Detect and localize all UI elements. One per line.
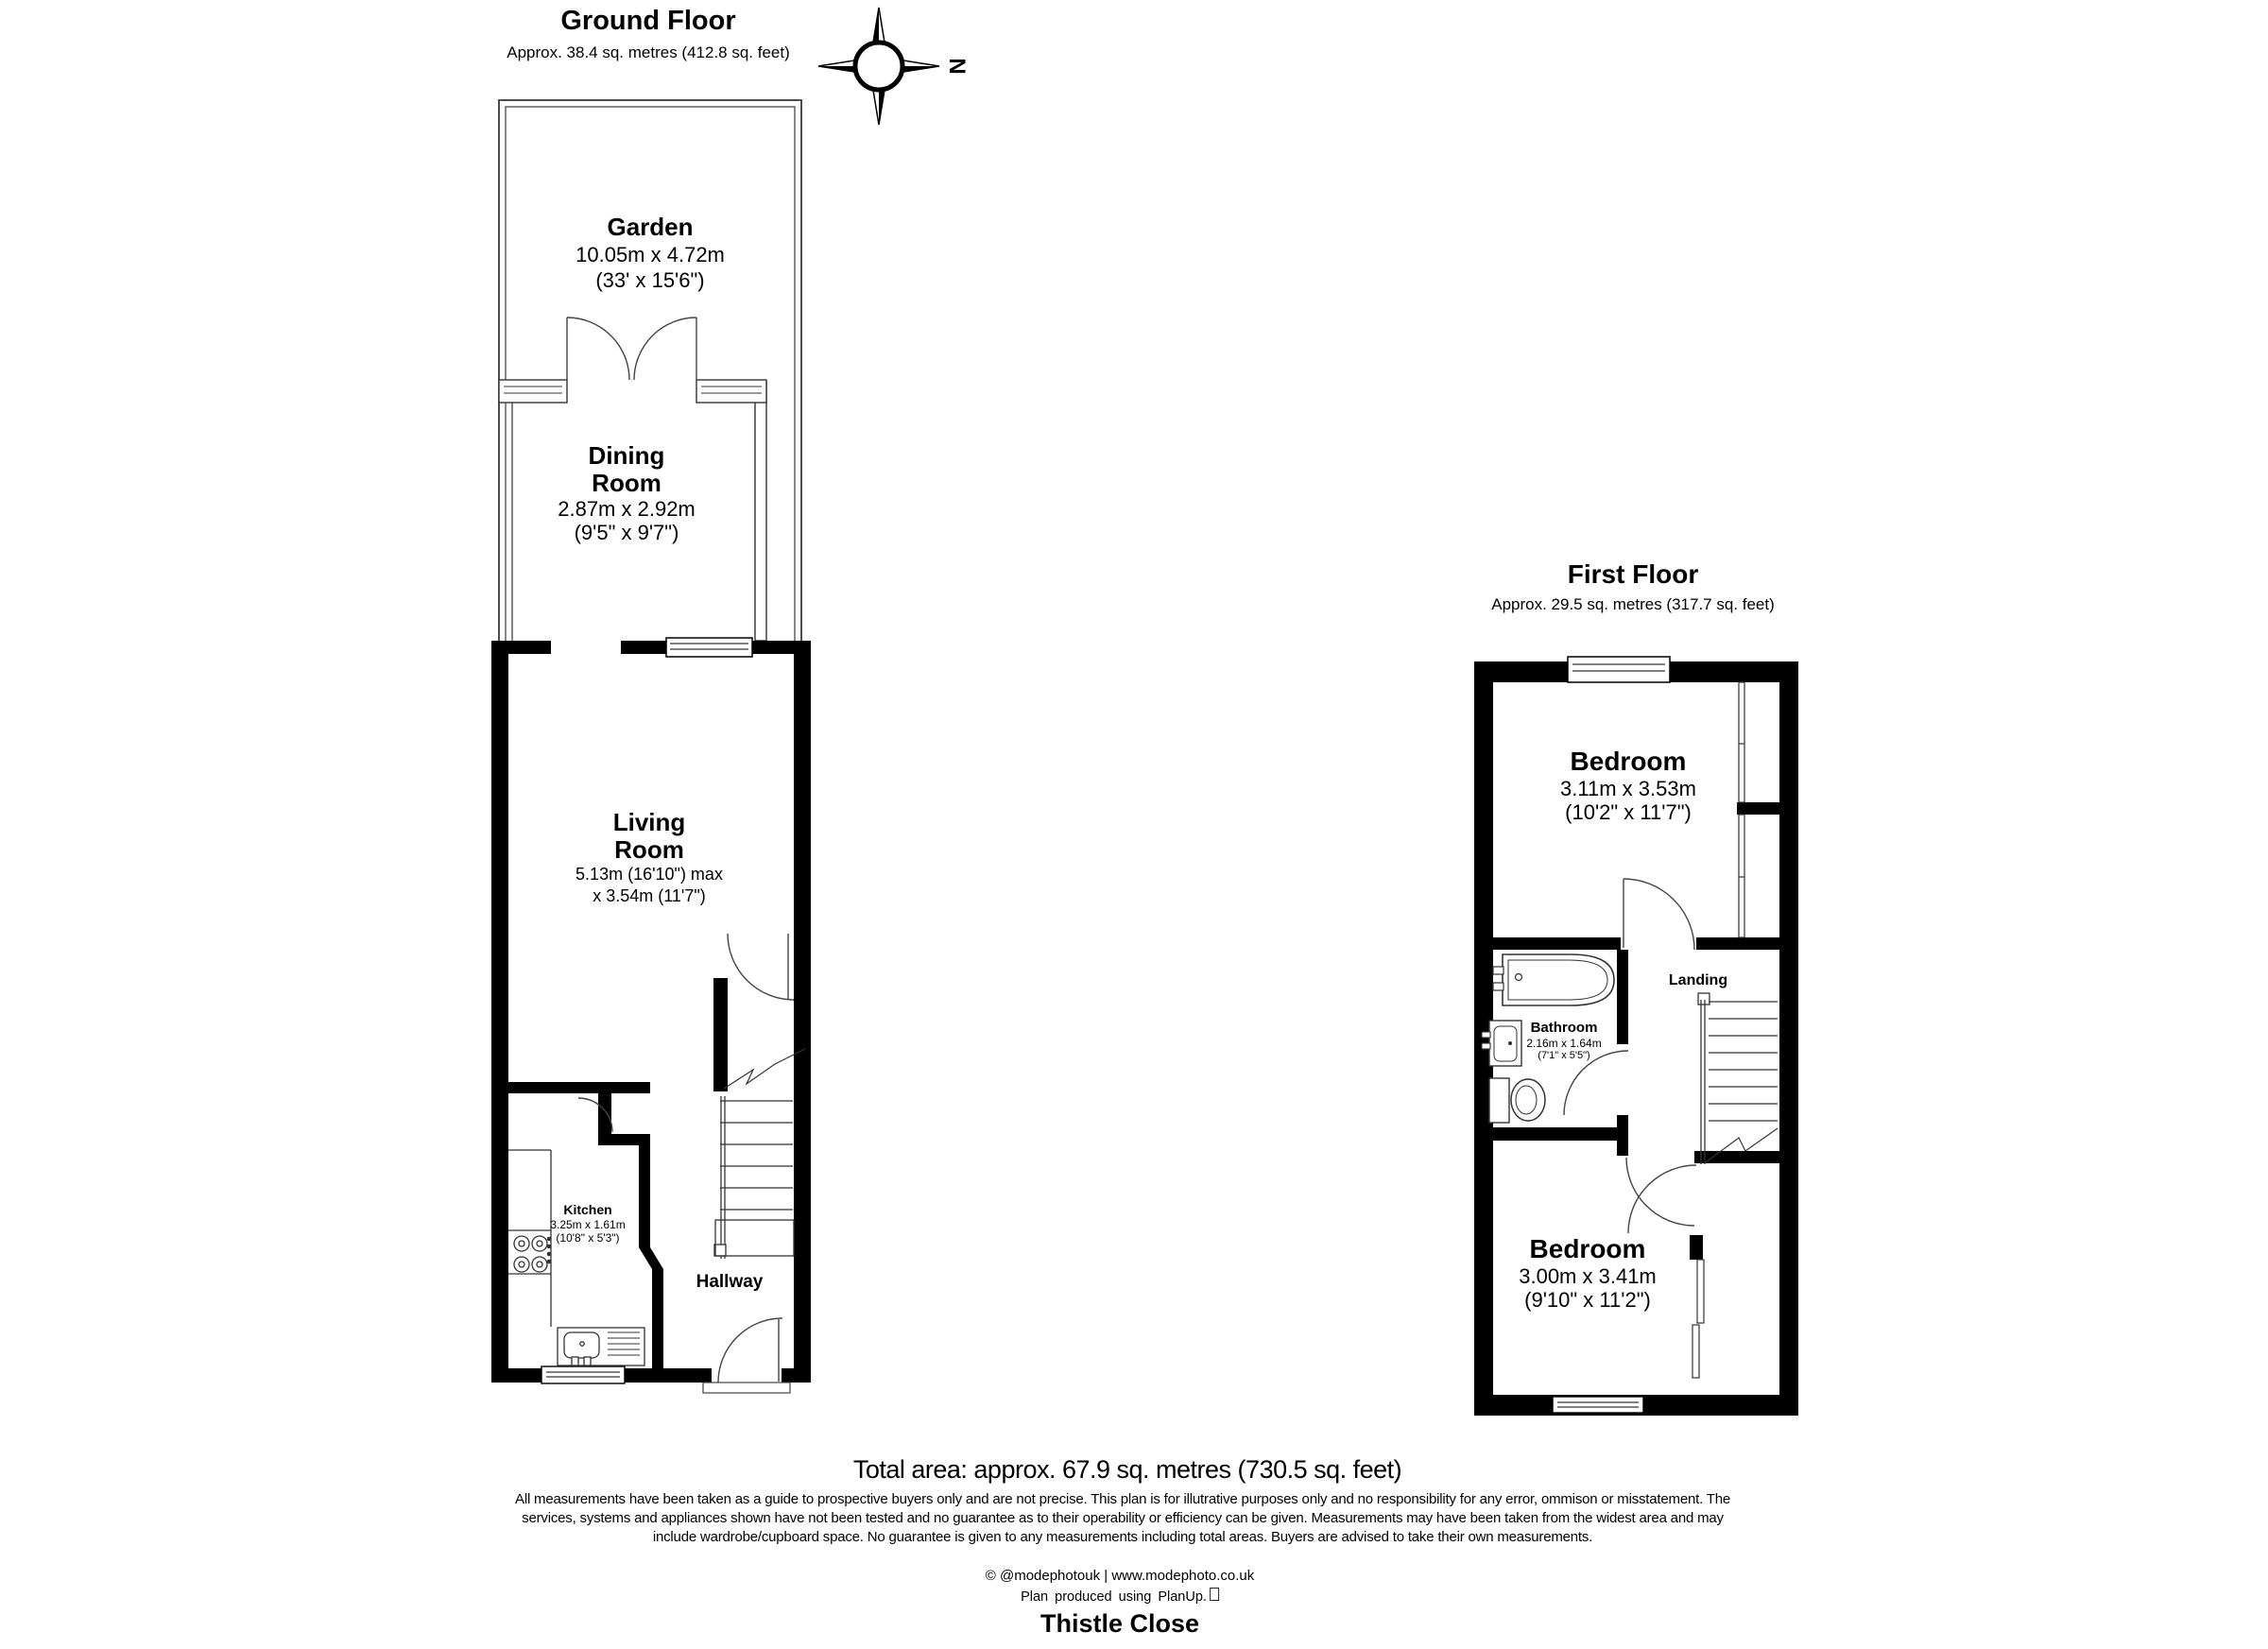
- garden-label: Garden 10.05m x 4.72m (33' x 15'6"): [576, 212, 725, 293]
- room-dims-imperial: (9'10" x 11'2"): [1519, 1288, 1657, 1312]
- disclaimer-line: services, systems and appliances shown h…: [515, 1509, 1730, 1528]
- compass-icon: [818, 8, 939, 125]
- room-name: Living: [576, 809, 723, 836]
- credit-line: © @modephotouk | www.modephoto.co.uk: [986, 1568, 1255, 1584]
- dining-room-label: Dining Room 2.87m x 2.92m (9'5" x 9'7"): [558, 442, 696, 544]
- room-dims-metric: 2.87m x 2.92m: [558, 497, 696, 521]
- room-dims-imperial: (9'5" x 9'7"): [558, 521, 696, 544]
- ground-floor-interior-walls: [508, 978, 728, 1368]
- french-doors-icon: [567, 318, 696, 380]
- room-name: Bedroom: [1560, 747, 1696, 777]
- bathtub-icon: [1493, 954, 1614, 1005]
- room-name: Kitchen: [550, 1202, 625, 1218]
- ground-floor-area: Approx. 38.4 sq. metres (412.8 sq. feet): [507, 43, 790, 62]
- property-name: Thistle Close: [1040, 1609, 1199, 1639]
- room-name: Dining: [558, 442, 696, 470]
- kitchen-sink-icon: [558, 1328, 644, 1366]
- ground-floor-plan: [491, 100, 811, 1393]
- hall-door-arc: [728, 934, 794, 1000]
- landing-label: Landing: [1669, 972, 1727, 989]
- room-dims-metric: 3.11m x 3.53m: [1560, 777, 1696, 800]
- room-dims-imperial: (10'8" x 5'3"): [550, 1231, 625, 1245]
- first-floor-title: First Floor: [1568, 559, 1698, 590]
- room-name: Bathroom: [1526, 1020, 1601, 1037]
- stairs-first-floor: [1698, 993, 1778, 1164]
- room-name: Bedroom: [1519, 1234, 1657, 1264]
- floorplan-graphics: [0, 0, 2268, 1649]
- first-floor-area: Approx. 29.5 sq. metres (317.7 sq. feet): [1491, 595, 1775, 614]
- room-name: Room: [576, 836, 723, 864]
- room-dims: x 3.54m (11'7"): [576, 885, 723, 907]
- disclaimer-line: All measurements have been taken as a gu…: [515, 1490, 1730, 1509]
- room-dims-imperial: (33' x 15'6"): [576, 267, 725, 293]
- toilet-icon: [1489, 1078, 1545, 1123]
- room-dims-metric: 2.16m x 1.64m: [1526, 1037, 1601, 1050]
- room-dims: 5.13m (16'10") max: [576, 864, 723, 885]
- bedroom-front-label: Bedroom 3.11m x 3.53m (10'2" x 11'7"): [1560, 747, 1696, 824]
- bedroom-back-label: Bedroom 3.00m x 3.41m (9'10" x 11'2"): [1519, 1234, 1657, 1312]
- bathroom-label: Bathroom 2.16m x 1.64m (7'1" x 5'5"): [1526, 1020, 1601, 1062]
- room-dims-metric: 3.00m x 3.41m: [1519, 1264, 1657, 1288]
- room-dims-imperial: (7'1" x 5'5"): [1526, 1050, 1601, 1062]
- ground-floor-door-arcs: [578, 934, 794, 1383]
- hallway-label: Hallway: [696, 1272, 764, 1293]
- bedroom-front-door-arc: [1624, 879, 1694, 950]
- room-name: Room: [558, 470, 696, 497]
- ground-floor-title: Ground Floor: [560, 6, 735, 37]
- room-name: Garden: [576, 212, 725, 242]
- kitchen-fixtures: [508, 1150, 644, 1366]
- produced-line: Plan produced using PlanUp.: [1021, 1588, 1219, 1605]
- floorplan-page: Ground Floor Approx. 38.4 sq. metres (41…: [0, 0, 2268, 1649]
- bedroom-back-door-arc: [1626, 1158, 1694, 1226]
- living-room-label: Living Room 5.13m (16'10") max x 3.54m (…: [576, 809, 723, 907]
- total-area: Total area: approx. 67.9 sq. metres (730…: [853, 1455, 1401, 1485]
- room-dims-imperial: (10'2" x 11'7"): [1560, 800, 1696, 824]
- stove-icon: [514, 1236, 551, 1272]
- room-dims-metric: 10.05m x 4.72m: [576, 242, 725, 267]
- missing-glyph-box: [1210, 1588, 1219, 1601]
- disclaimer: All measurements have been taken as a gu…: [515, 1490, 1730, 1547]
- closet-doors: [1692, 682, 1744, 1378]
- stairs-ground-floor: [714, 1049, 805, 1259]
- garden-fence: [499, 100, 801, 644]
- compass-north-label: N: [948, 53, 964, 79]
- room-dims-metric: 3.25m x 1.61m: [550, 1218, 625, 1231]
- kitchen-label: Kitchen 3.25m x 1.61m (10'8" x 5'3"): [550, 1202, 625, 1245]
- disclaimer-line: include wardrobe/cupboard space. No guar…: [515, 1528, 1730, 1547]
